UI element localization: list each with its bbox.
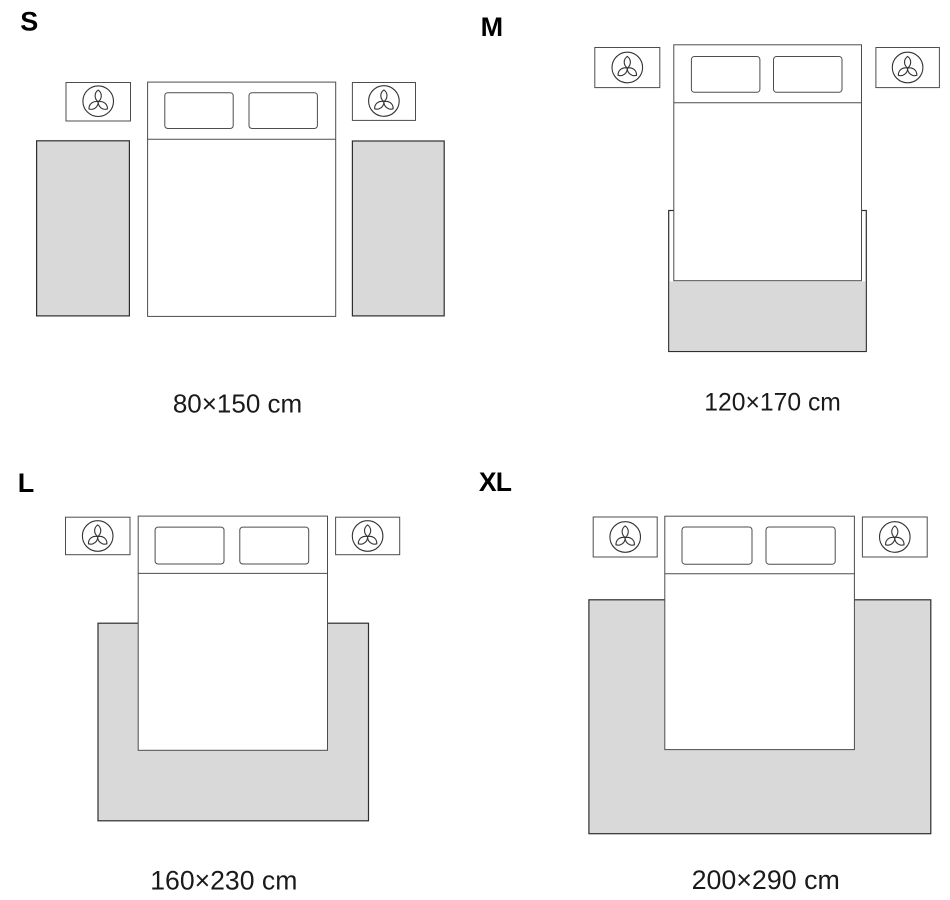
svg-text:120×170 cm: 120×170 cm [704,389,841,416]
svg-text:160×230 cm: 160×230 cm [150,865,297,895]
svg-text:S: S [20,6,38,36]
svg-text:200×290 cm: 200×290 cm [692,865,840,895]
svg-text:80×150 cm: 80×150 cm [173,388,302,418]
svg-text:M: M [481,12,504,42]
svg-text:XL: XL [479,467,512,497]
svg-text:L: L [18,468,35,498]
